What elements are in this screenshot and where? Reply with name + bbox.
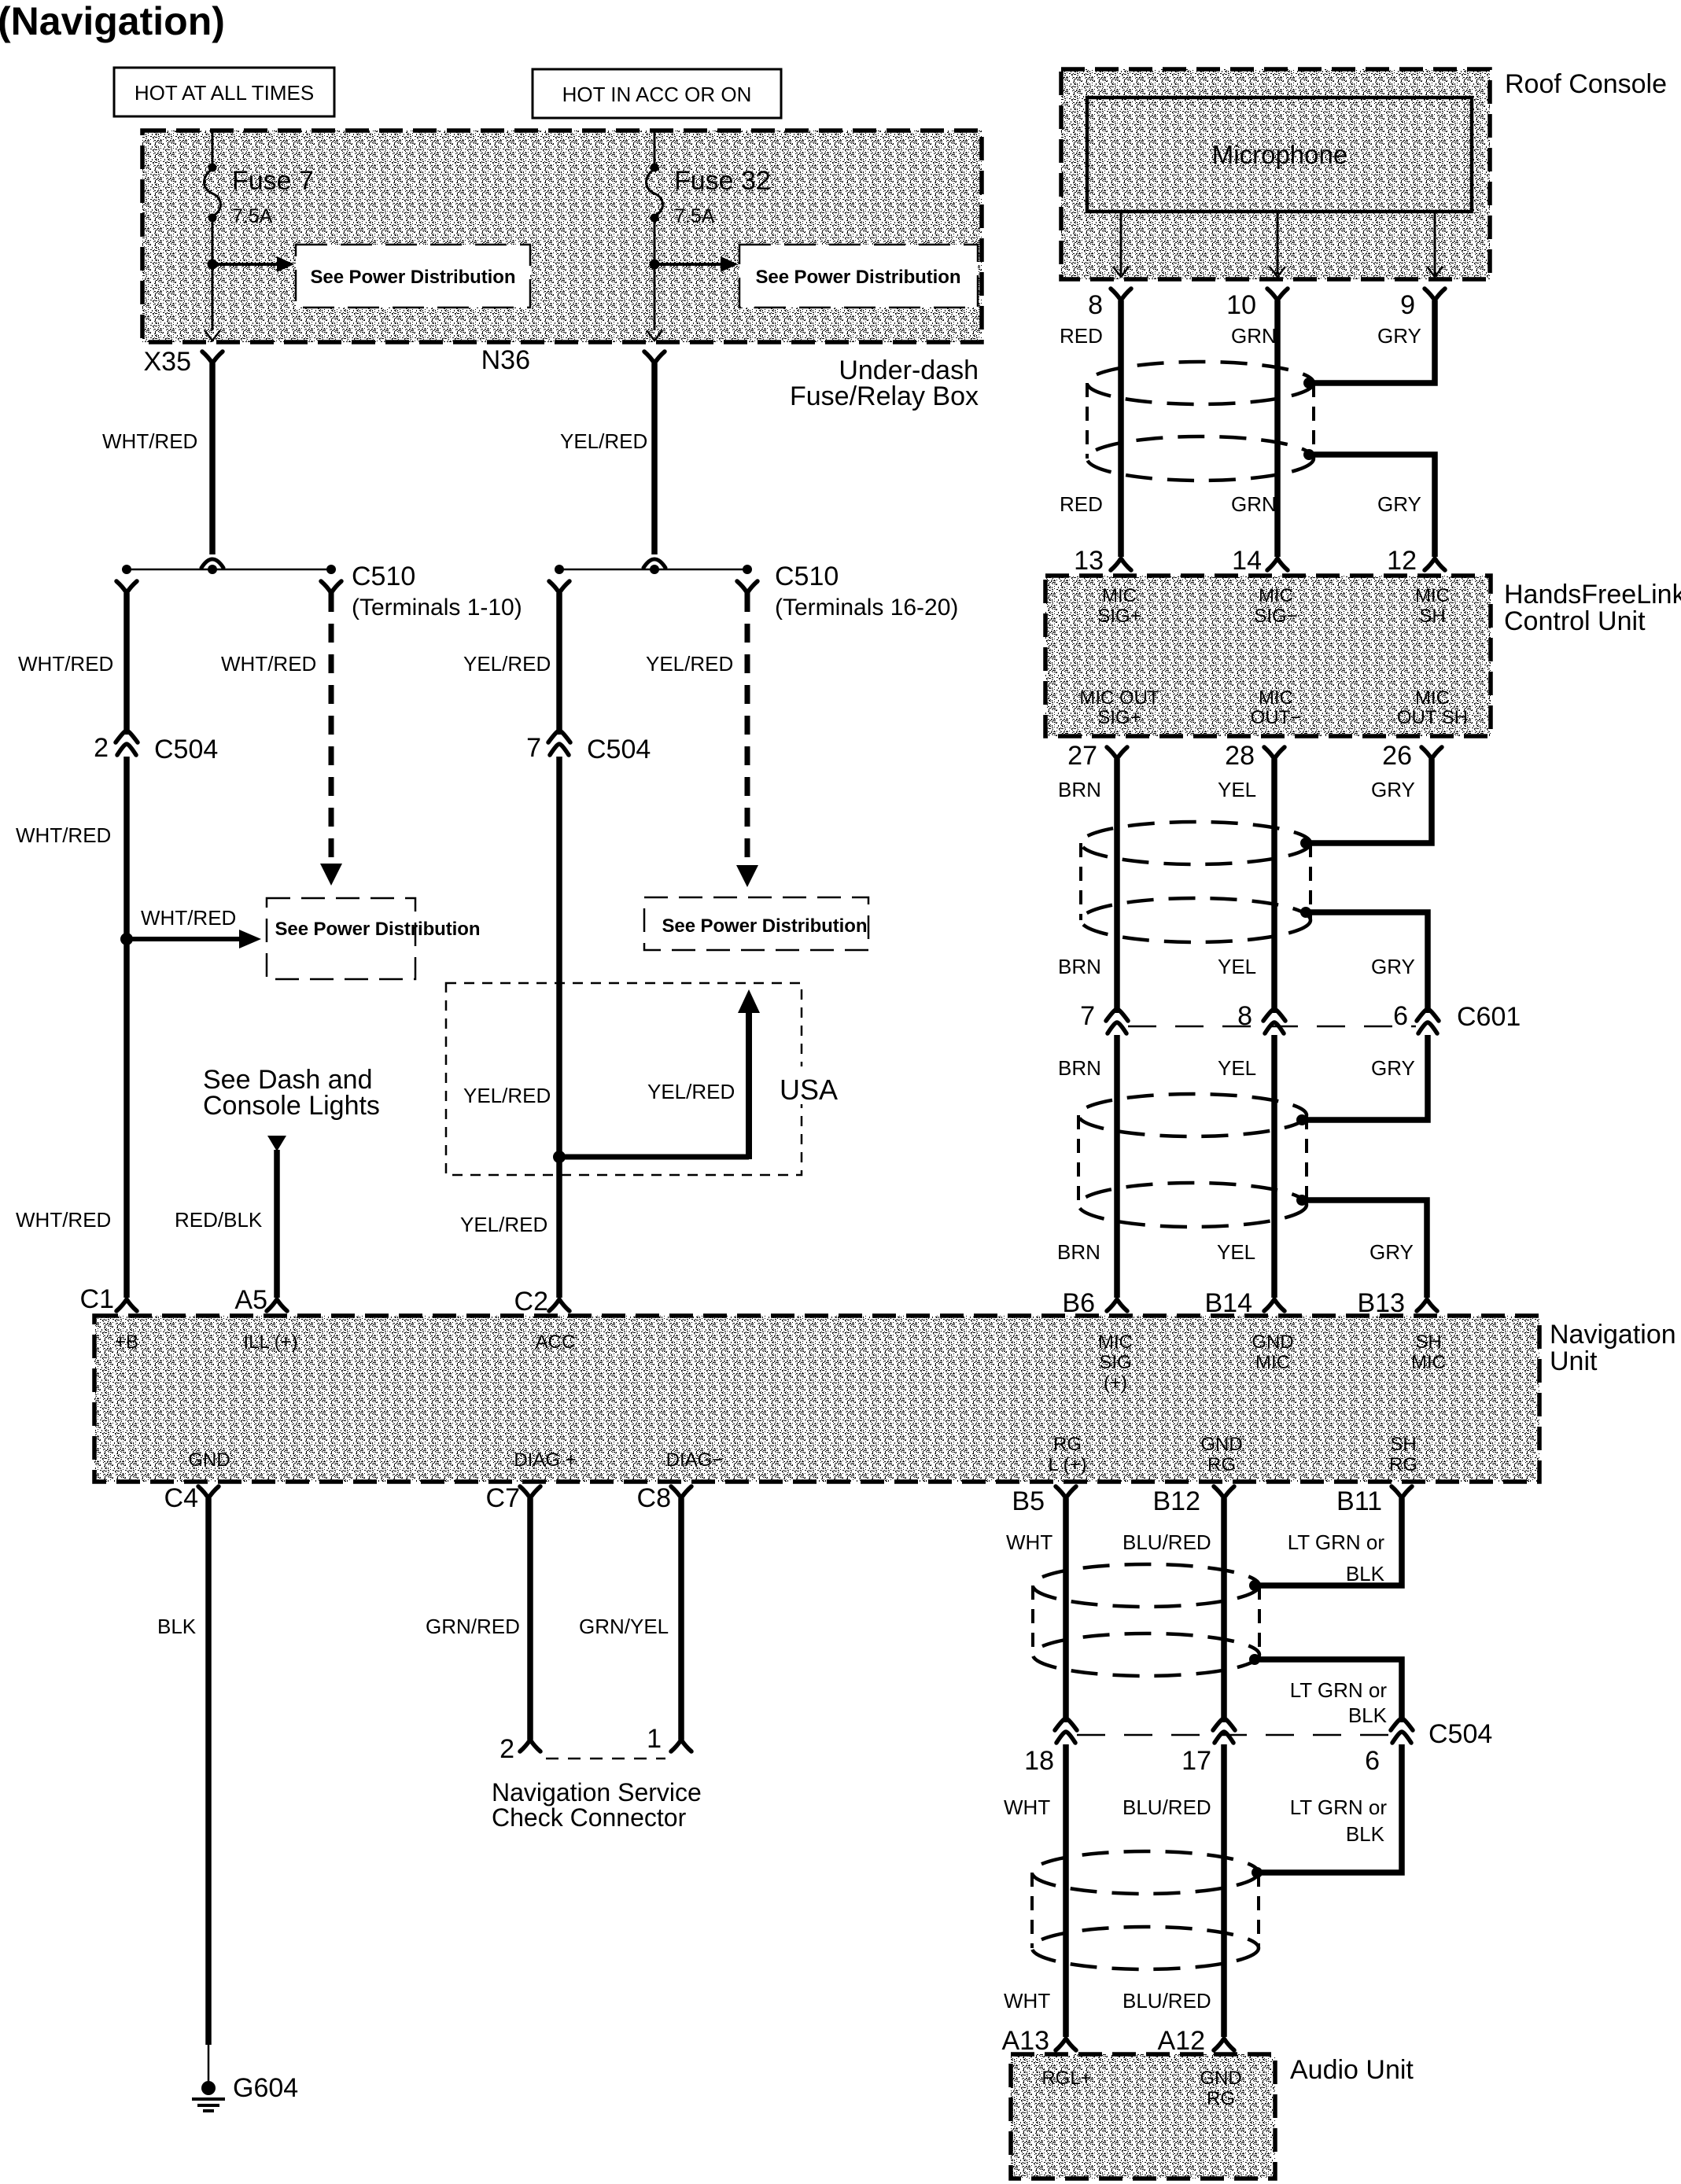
svg-text:GND: GND	[188, 1449, 230, 1471]
svg-text:GRY: GRY	[1371, 778, 1415, 801]
svg-text:B12: B12	[1153, 1486, 1201, 1516]
svg-text:BLK: BLK	[1346, 1562, 1385, 1586]
svg-text:Navigation Service: Navigation Service	[492, 1778, 702, 1806]
svg-text:17: 17	[1181, 1746, 1211, 1776]
svg-text:C4: C4	[164, 1483, 198, 1513]
svg-text:13: 13	[1074, 546, 1104, 576]
svg-text:MIC: MIC	[1415, 687, 1450, 709]
svg-text:BLU/RED: BLU/RED	[1123, 1795, 1211, 1819]
svg-text:BLK: BLK	[1348, 1703, 1388, 1727]
svg-text:DIAG +: DIAG +	[514, 1449, 576, 1471]
svg-text:Console Lights: Console Lights	[203, 1091, 380, 1121]
svg-text:MIC OUT: MIC OUT	[1079, 687, 1159, 709]
svg-text:HandsFreeLink: HandsFreeLink	[1504, 580, 1681, 610]
svg-text:26: 26	[1382, 741, 1412, 771]
svg-text:18: 18	[1024, 1746, 1054, 1776]
svg-text:(Terminals 1-10): (Terminals 1-10)	[352, 595, 522, 621]
svg-text:N36: N36	[481, 345, 530, 375]
svg-text:2: 2	[94, 733, 109, 763]
svg-text:GRY: GRY	[1377, 324, 1421, 348]
svg-text:YEL/RED: YEL/RED	[560, 429, 647, 453]
svg-text:GRY: GRY	[1371, 955, 1415, 978]
svg-text:C510: C510	[352, 562, 415, 591]
svg-text:X35: X35	[144, 347, 192, 377]
svg-text:C601: C601	[1457, 1002, 1521, 1032]
svg-text:C504: C504	[587, 735, 651, 764]
svg-text:SH: SH	[1415, 1331, 1441, 1353]
svg-text:BLU/RED: BLU/RED	[1123, 1530, 1211, 1554]
svg-text:27: 27	[1067, 741, 1097, 771]
svg-text:GND: GND	[1200, 1434, 1242, 1455]
svg-text:OUT−: OUT−	[1251, 707, 1302, 728]
svg-text:Fuse 32: Fuse 32	[674, 166, 771, 196]
svg-text:GRY: GRY	[1369, 1240, 1414, 1264]
svg-text:C510: C510	[775, 562, 839, 591]
svg-text:L (+): L (+)	[1048, 1454, 1086, 1475]
svg-text:14: 14	[1232, 546, 1262, 576]
svg-text:RG: RG	[1053, 1434, 1082, 1455]
svg-text:GRN: GRN	[1231, 324, 1277, 348]
svg-text:GRY: GRY	[1377, 492, 1421, 516]
svg-text:SIG+: SIG+	[1097, 606, 1141, 627]
svg-text:BRN: BRN	[1058, 778, 1101, 801]
svg-text:DIAG−: DIAG−	[666, 1449, 724, 1471]
svg-text:8: 8	[1088, 290, 1103, 320]
svg-text:SIG+: SIG+	[1097, 707, 1141, 728]
svg-text:WHT/RED: WHT/RED	[141, 906, 236, 930]
svg-text:Control Unit: Control Unit	[1504, 606, 1646, 636]
svg-text:B11: B11	[1336, 1486, 1382, 1516]
svg-text:YEL/RED: YEL/RED	[463, 1084, 551, 1107]
svg-text:A13: A13	[1002, 2026, 1050, 2056]
svg-text:7.5A: 7.5A	[232, 205, 273, 227]
svg-text:12: 12	[1387, 546, 1417, 576]
svg-text:HOT IN ACC OR ON: HOT IN ACC OR ON	[562, 83, 752, 106]
svg-text:SIG−: SIG−	[1254, 606, 1297, 627]
svg-text:BRN: BRN	[1058, 955, 1101, 978]
svg-text:YEL: YEL	[1217, 1240, 1255, 1264]
svg-text:BLK: BLK	[1346, 1822, 1385, 1846]
svg-text:WHT: WHT	[1004, 1989, 1050, 2013]
svg-text:7: 7	[1080, 1001, 1095, 1031]
svg-text:RG: RG	[1389, 1454, 1417, 1475]
svg-text:YEL: YEL	[1218, 1056, 1256, 1080]
svg-text:YEL/RED: YEL/RED	[460, 1213, 547, 1236]
svg-text:6: 6	[1365, 1746, 1380, 1776]
svg-text:B14: B14	[1205, 1288, 1253, 1318]
svg-text:10: 10	[1226, 290, 1256, 320]
svg-text:B5: B5	[1012, 1486, 1045, 1516]
svg-text:(+): (+)	[1104, 1372, 1127, 1394]
svg-text:Fuse/Relay Box: Fuse/Relay Box	[790, 381, 979, 411]
svg-text:B13: B13	[1358, 1288, 1406, 1318]
svg-text:Microphone: Microphone	[1212, 140, 1347, 169]
svg-text:WHT: WHT	[1006, 1530, 1052, 1554]
svg-text:7: 7	[526, 733, 541, 763]
svg-text:B6: B6	[1062, 1288, 1095, 1318]
svg-text:BLK: BLK	[157, 1615, 197, 1638]
svg-text:C7: C7	[486, 1483, 520, 1513]
svg-text:Navigation: Navigation	[1550, 1320, 1676, 1350]
svg-text:A5: A5	[234, 1285, 267, 1315]
svg-text:8: 8	[1237, 1001, 1252, 1031]
svg-text:OUT SH: OUT SH	[1397, 707, 1468, 728]
svg-text:See Power Distribution: See Power Distribution	[275, 919, 481, 940]
svg-text:BRN: BRN	[1058, 1056, 1101, 1080]
svg-text:See Power Distribution: See Power Distribution	[756, 267, 961, 288]
svg-text:7.5A: 7.5A	[674, 205, 715, 227]
svg-text:WHT/RED: WHT/RED	[102, 429, 197, 453]
svg-text:Fuse 7: Fuse 7	[232, 166, 314, 196]
svg-text:1: 1	[647, 1724, 662, 1754]
svg-text:LT GRN or: LT GRN or	[1290, 1678, 1388, 1702]
svg-text:9: 9	[1400, 290, 1415, 320]
svg-text:C8: C8	[637, 1483, 671, 1513]
svg-text:YEL: YEL	[1218, 778, 1256, 801]
svg-text:C1: C1	[80, 1284, 114, 1314]
svg-text:BRN: BRN	[1057, 1240, 1100, 1264]
svg-text:MIC: MIC	[1255, 1352, 1290, 1373]
svg-text:LT GRN or: LT GRN or	[1288, 1530, 1385, 1554]
svg-text:WHT/RED: WHT/RED	[16, 823, 111, 847]
svg-text:WHT/RED: WHT/RED	[16, 1208, 111, 1232]
svg-text:YEL/RED: YEL/RED	[647, 1080, 735, 1103]
svg-text:See Power Distribution: See Power Distribution	[662, 915, 868, 937]
svg-text:GRN/YEL: GRN/YEL	[579, 1615, 669, 1638]
svg-text:C504: C504	[154, 735, 218, 764]
svg-text:C504: C504	[1428, 1719, 1492, 1749]
svg-text:GND: GND	[1200, 2068, 1241, 2089]
svg-text:YEL/RED: YEL/RED	[463, 652, 551, 676]
svg-text:RED: RED	[1060, 492, 1103, 516]
svg-text:6: 6	[1393, 1001, 1408, 1031]
svg-text:RED: RED	[1060, 324, 1103, 348]
svg-text:28: 28	[1225, 741, 1255, 771]
svg-text:Roof Console: Roof Console	[1505, 69, 1667, 99]
svg-text:A12: A12	[1158, 2026, 1206, 2056]
svg-text:BLU/RED: BLU/RED	[1123, 1989, 1211, 2013]
svg-text:GRY: GRY	[1371, 1056, 1415, 1080]
svg-text:HOT AT ALL TIMES: HOT AT ALL TIMES	[135, 81, 314, 105]
svg-text:Check Connector: Check Connector	[492, 1803, 687, 1832]
svg-text:ILL (+): ILL (+)	[243, 1331, 297, 1353]
svg-text:GRN: GRN	[1231, 492, 1277, 516]
svg-text:RG: RG	[1207, 2088, 1235, 2109]
svg-text:(Navigation): (Navigation)	[0, 0, 225, 43]
svg-text:2: 2	[500, 1734, 514, 1764]
svg-text:G604: G604	[233, 2073, 298, 2103]
svg-text:SH: SH	[1390, 1434, 1416, 1455]
svg-text:USA: USA	[780, 1074, 838, 1106]
svg-text:WHT/RED: WHT/RED	[18, 652, 113, 676]
svg-text:MIC: MIC	[1259, 687, 1293, 709]
svg-text:YEL/RED: YEL/RED	[646, 652, 733, 676]
svg-text:RGL+: RGL+	[1041, 2068, 1091, 2089]
svg-text:MIC: MIC	[1411, 1352, 1446, 1373]
svg-text:SH: SH	[1419, 606, 1445, 627]
svg-text:RED/BLK: RED/BLK	[175, 1208, 263, 1232]
svg-text:MIC: MIC	[1102, 585, 1137, 606]
svg-text:MIC: MIC	[1098, 1331, 1133, 1353]
svg-text:WHT/RED: WHT/RED	[221, 652, 316, 676]
svg-text:See Power Distribution: See Power Distribution	[311, 267, 516, 288]
svg-text:MIC: MIC	[1259, 585, 1293, 606]
svg-text:+B: +B	[115, 1331, 138, 1353]
svg-text:ACC: ACC	[536, 1331, 576, 1353]
svg-text:GRN/RED: GRN/RED	[426, 1615, 520, 1638]
svg-text:GND: GND	[1252, 1331, 1293, 1353]
svg-text:Unit: Unit	[1550, 1346, 1598, 1376]
svg-text:C2: C2	[514, 1287, 548, 1317]
svg-text:WHT: WHT	[1004, 1795, 1050, 1819]
svg-text:SIG: SIG	[1099, 1352, 1131, 1373]
svg-text:RG: RG	[1207, 1454, 1236, 1475]
svg-text:Audio Unit: Audio Unit	[1290, 2055, 1414, 2085]
svg-text:LT GRN or: LT GRN or	[1290, 1795, 1388, 1819]
svg-text:YEL: YEL	[1218, 955, 1256, 978]
svg-text:MIC: MIC	[1415, 585, 1450, 606]
svg-text:(Terminals 16-20): (Terminals 16-20)	[775, 595, 958, 621]
